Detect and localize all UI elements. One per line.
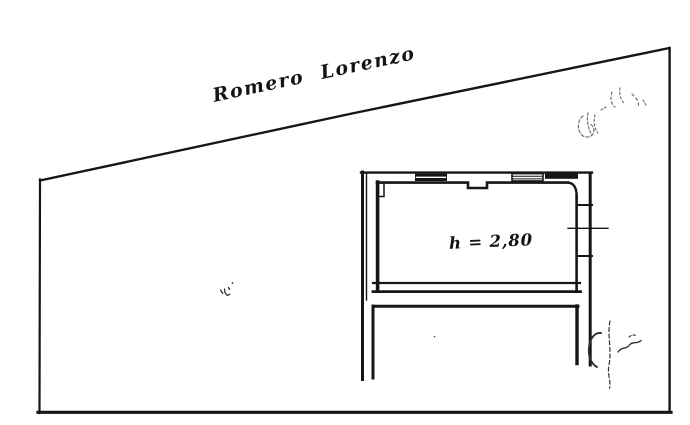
annex-walls [373, 306, 578, 378]
door-opening [568, 205, 608, 256]
solid-wall-segment [545, 172, 578, 179]
window-icon [512, 174, 543, 181]
signature-scribble-icon [589, 321, 641, 388]
faint-pencil-scribble-icon [578, 88, 646, 137]
scanned-floor-plan-page: Romero Lorenzo h = 2,80 [0, 0, 690, 425]
building-outer-walls [361, 172, 592, 380]
room-height-label: h = 2,80 [449, 230, 534, 253]
